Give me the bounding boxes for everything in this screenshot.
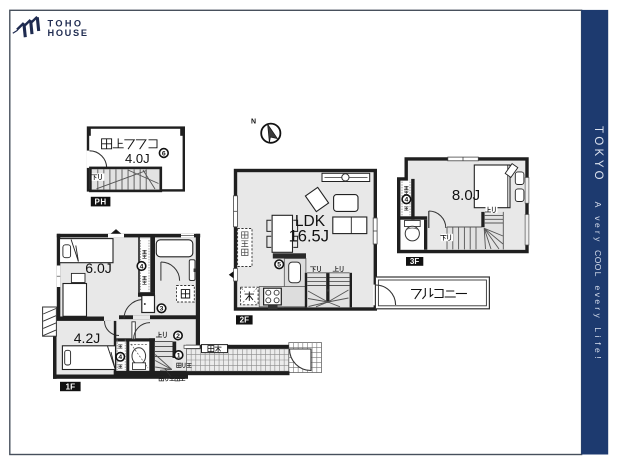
svg-text:HOUSE: HOUSE <box>48 28 89 38</box>
svg-text:v: v <box>593 216 603 221</box>
svg-text:4.0J: 4.0J <box>125 151 150 166</box>
svg-text:C: C <box>593 250 603 256</box>
svg-text:K: K <box>592 148 604 156</box>
svg-text:L: L <box>593 327 603 332</box>
svg-text:e: e <box>593 286 603 291</box>
svg-text:3F: 3F <box>410 257 419 266</box>
svg-text:A: A <box>593 202 603 208</box>
svg-text:Y: Y <box>592 160 604 168</box>
svg-text:4: 4 <box>118 354 122 361</box>
svg-text:v: v <box>593 293 603 298</box>
svg-text:1: 1 <box>177 352 181 359</box>
svg-text:6: 6 <box>162 150 166 157</box>
svg-text:8.0J: 8.0J <box>452 187 480 204</box>
svg-text:3: 3 <box>160 306 164 313</box>
svg-text:2: 2 <box>176 333 180 340</box>
svg-text:O: O <box>592 171 604 180</box>
svg-text:6.0J: 6.0J <box>85 260 111 276</box>
svg-text:1F: 1F <box>66 382 76 391</box>
svg-text:16.5J: 16.5J <box>289 228 329 246</box>
svg-text:L: L <box>593 272 603 277</box>
svg-text:O: O <box>592 136 604 145</box>
svg-text:2F: 2F <box>240 316 249 325</box>
svg-text:O: O <box>593 264 603 271</box>
svg-text:T: T <box>592 126 604 133</box>
svg-text:5: 5 <box>277 262 281 269</box>
svg-text:N: N <box>251 119 256 126</box>
svg-text:r: r <box>593 307 603 310</box>
svg-text:y: y <box>593 314 603 319</box>
svg-text:O: O <box>593 257 603 264</box>
svg-text:4: 4 <box>405 197 409 204</box>
svg-text:e: e <box>593 348 603 353</box>
svg-text:PH: PH <box>95 197 107 206</box>
svg-text:y: y <box>593 237 603 242</box>
svg-text:i: i <box>593 336 603 338</box>
svg-text:4: 4 <box>140 263 144 270</box>
svg-text:4.2J: 4.2J <box>74 330 100 346</box>
svg-text:e: e <box>593 299 603 304</box>
svg-text:!: ! <box>593 356 603 358</box>
svg-text:r: r <box>593 231 603 234</box>
svg-text:e: e <box>593 223 603 228</box>
